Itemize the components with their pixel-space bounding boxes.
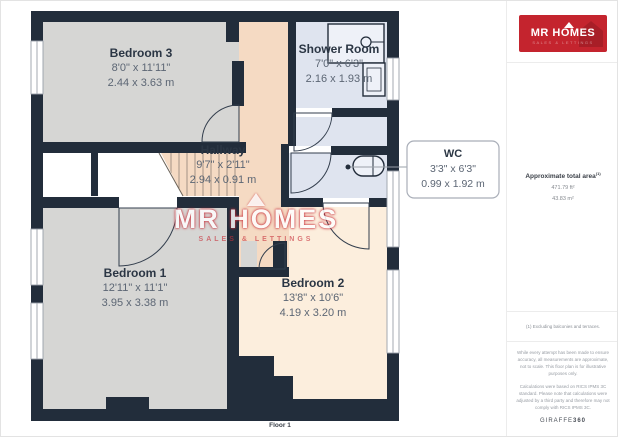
window bbox=[387, 171, 399, 247]
sidebar-area-section: Approximate total area(1) 471.79 ft² 43.… bbox=[507, 63, 618, 312]
sidebar-footnote-section: (1) Excluding balconies and terraces. bbox=[507, 312, 618, 342]
window bbox=[387, 270, 399, 353]
wc-callout-box bbox=[407, 141, 499, 198]
sidebar: MR HOMES SALES & LETTINGS Approximate to… bbox=[506, 1, 618, 437]
footnote-text: (1) Excluding balconies and terraces. bbox=[526, 324, 600, 329]
room-fills bbox=[31, 11, 399, 421]
giraffe360-brand: GIRAFFE360 bbox=[516, 418, 610, 424]
sidebar-disclaimer-section: While every attempt has been made to ens… bbox=[507, 342, 618, 424]
shower-enclosure bbox=[328, 24, 384, 63]
logo-title: MR HOMES bbox=[531, 27, 596, 39]
room-bedroom-3 bbox=[43, 22, 239, 142]
total-area-text: Approximate total area bbox=[525, 173, 595, 180]
window bbox=[387, 58, 399, 100]
wc-leader-dot bbox=[346, 165, 351, 170]
total-area-metric: 43.83 m² bbox=[552, 196, 574, 202]
toilet bbox=[353, 156, 384, 176]
disclaimer-paragraph-1: While every attempt has been made to ens… bbox=[516, 350, 610, 378]
mr-homes-logo: MR HOMES SALES & LETTINGS bbox=[519, 15, 607, 52]
window bbox=[31, 303, 43, 359]
window bbox=[31, 229, 43, 285]
floorplan-page: Bedroom 3 8'0" x 11'11" 2.44 x 3.63 m Sh… bbox=[0, 0, 618, 437]
disclaimer-paragraph-2: Calculations were based on RICS IPMS 3C … bbox=[516, 384, 610, 412]
brand-name: GIRAFFE bbox=[540, 418, 573, 424]
cupboard bbox=[241, 241, 257, 267]
sidebar-logo-section: MR HOMES SALES & LETTINGS bbox=[507, 1, 618, 63]
window bbox=[31, 41, 43, 94]
brand-number: 360 bbox=[573, 418, 586, 424]
total-area-label: Approximate total area(1) bbox=[525, 171, 600, 180]
room-bedroom-1 bbox=[43, 208, 227, 409]
room-vestibule bbox=[296, 117, 387, 146]
total-area-footnote-marker: (1) bbox=[596, 171, 601, 176]
logo-subtitle: SALES & LETTINGS bbox=[532, 40, 593, 45]
total-area-imperial: 471.79 ft² bbox=[551, 185, 574, 191]
